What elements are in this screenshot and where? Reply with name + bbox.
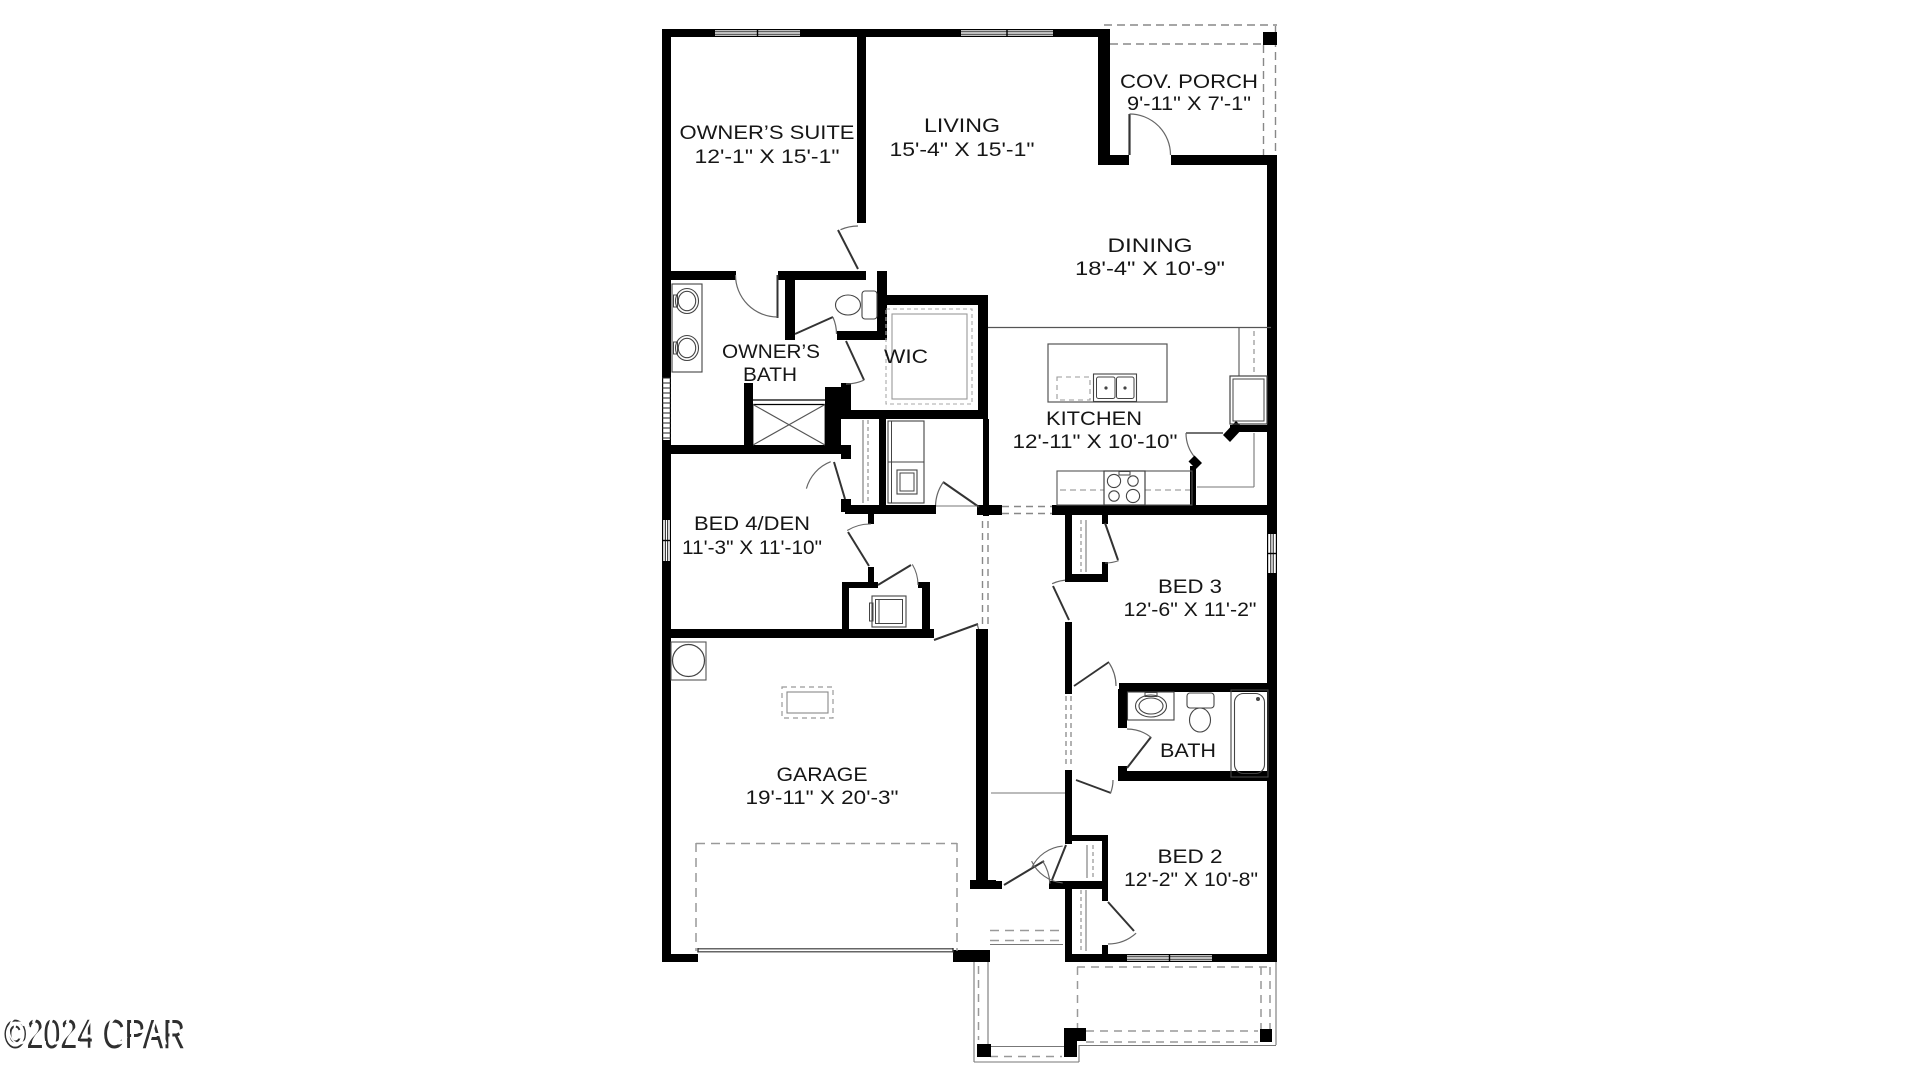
svg-text:OWNER’S SUITE: OWNER’S SUITE — [680, 122, 855, 144]
svg-text:©2024 CPAR: ©2024 CPAR — [8, 1007, 189, 1053]
svg-text:BATH: BATH — [743, 364, 797, 386]
svg-text:12'-2" X 10'-8": 12'-2" X 10'-8" — [1124, 869, 1258, 891]
svg-text:11'-3" X 11'-10": 11'-3" X 11'-10" — [682, 537, 822, 559]
svg-text:BATH: BATH — [1160, 740, 1216, 762]
svg-text:12'-6" X 11'-2": 12'-6" X 11'-2" — [1124, 599, 1257, 621]
svg-text:BED 4/DEN: BED 4/DEN — [694, 513, 810, 535]
svg-text:OWNER’S: OWNER’S — [722, 341, 820, 363]
svg-text:DINING: DINING — [1108, 235, 1193, 257]
svg-text:BED 3: BED 3 — [1158, 576, 1222, 598]
svg-text:COV. PORCH: COV. PORCH — [1120, 71, 1258, 93]
svg-text:15'-4" X 15'-1": 15'-4" X 15'-1" — [890, 139, 1035, 161]
svg-text:WIC: WIC — [884, 346, 928, 368]
svg-text:12'-11" X 10'-10": 12'-11" X 10'-10" — [1013, 431, 1178, 453]
svg-text:19'-11" X 20'-3": 19'-11" X 20'-3" — [746, 787, 899, 809]
svg-text:9'-11" X 7'-1": 9'-11" X 7'-1" — [1127, 93, 1251, 115]
svg-text:12'-1" X 15'-1": 12'-1" X 15'-1" — [695, 146, 840, 168]
svg-text:18'-4" X 10'-9": 18'-4" X 10'-9" — [1075, 258, 1225, 280]
svg-text:BED 2: BED 2 — [1158, 846, 1223, 868]
svg-text:GARAGE: GARAGE — [777, 764, 868, 786]
svg-text:KITCHEN: KITCHEN — [1046, 408, 1142, 430]
svg-text:LIVING: LIVING — [924, 115, 1000, 137]
